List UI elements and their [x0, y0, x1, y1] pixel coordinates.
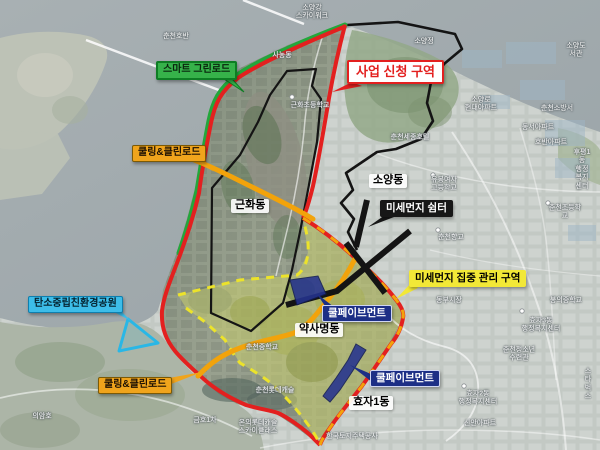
label-cooling-road-2: 쿨링&클린로드: [98, 377, 172, 394]
place-label: 소양도서관: [564, 43, 588, 60]
place-label: 사농동: [272, 52, 291, 60]
label-smart-greenroad: 스마트 그린로드: [156, 61, 237, 80]
place-label: 효자2동 행정복지센터: [459, 391, 498, 408]
place-label: 동부시장: [436, 297, 462, 305]
place-label: 의암호: [32, 413, 51, 421]
place-label: 봉의중학교: [550, 297, 582, 305]
place-label: 온의롯데캐슬 스카이클래스: [239, 420, 278, 437]
place-label: 춘천중학교: [246, 344, 278, 352]
place-label: 춘천초등학교: [548, 205, 583, 222]
label-soyang-dong: 소양동: [369, 174, 407, 188]
label-yaksamyeong-dong: 약사명동: [295, 323, 343, 337]
place-label: 후평1동 행정복지센터: [573, 149, 591, 191]
place-label: 춘천롯데캐슬: [256, 387, 295, 395]
label-dust-shelter: 미세먼지 쉼터: [380, 200, 453, 217]
place-label: 유봉여자 고등학교: [431, 177, 457, 194]
place-label: 효자3동 행정복지센터: [522, 318, 561, 335]
place-label: 소양강 스카이워크: [296, 5, 328, 22]
place-label: 춘천소방서: [541, 105, 573, 113]
label-cool-pavement-1: 쿨페이브먼트: [322, 305, 392, 322]
place-label: 호반아파트: [535, 139, 567, 147]
place-label: 신안아파트: [464, 420, 496, 428]
place-label: 동서아파트: [522, 124, 554, 132]
place-label: 소양로 현대아파트: [465, 97, 497, 114]
place-label: 춘천향교: [438, 234, 464, 242]
place-label: 스타벅스: [582, 368, 594, 402]
place-label: 근화초등학교: [291, 102, 330, 110]
satellite-map-canvas: [0, 0, 600, 450]
chuncheon-project-map: 춘천호반소양강 스카이워크소양정의암호사농동근화초등학교소양로 현대아파트춘천세…: [0, 0, 600, 450]
label-hyoja1-dong: 효자1동: [349, 396, 393, 410]
place-label: 춘천호반: [163, 33, 189, 41]
place-label: 소양정: [414, 38, 433, 46]
place-label: 춘천청소년 수련관: [503, 347, 535, 364]
label-geunhwa-dong: 근화동: [231, 199, 269, 213]
label-carbon-park: 탄소중립친환경공원: [28, 296, 123, 313]
label-dust-zone: 미세먼지 집중 관리 구역: [409, 270, 526, 287]
place-label: 금호1차: [193, 417, 216, 425]
place-label: 춘천세종호텔: [391, 134, 430, 142]
place-label: 한국토지주택공사: [326, 433, 378, 441]
label-cool-pavement-2: 쿨페이브먼트: [370, 370, 440, 387]
label-project-zone: 사업 신청 구역: [347, 60, 444, 84]
label-cooling-road-1: 쿨링&클린로드: [132, 145, 206, 162]
